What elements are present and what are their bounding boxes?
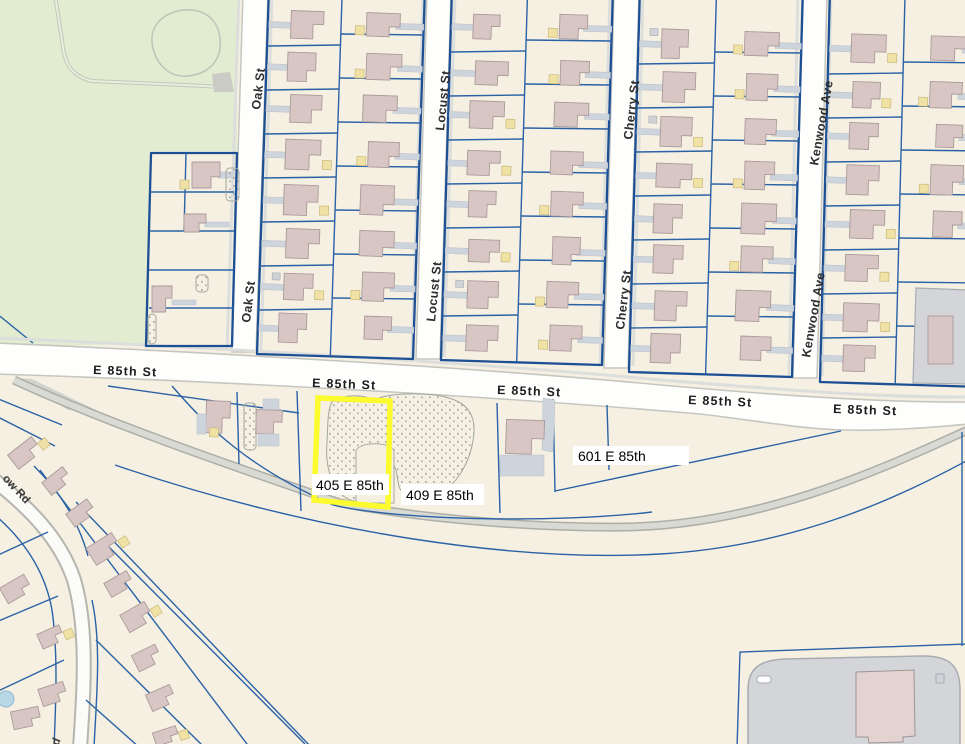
address-label-409-text: 409 E 85th — [406, 487, 474, 503]
shed — [650, 28, 658, 35]
garage — [882, 99, 891, 108]
driveway — [205, 222, 229, 227]
parking-lot — [748, 656, 960, 744]
address-label-601: 601 E 85th — [573, 446, 689, 465]
address-label-405-text: 405 E 85th — [316, 477, 384, 493]
garage — [730, 261, 739, 270]
garage — [540, 206, 549, 215]
address-label-601-text: 601 E 85th — [578, 448, 646, 464]
address-label-409: 409 E 85th — [401, 484, 484, 505]
garage — [355, 69, 364, 78]
parcel-line — [266, 89, 339, 90]
garage — [506, 119, 515, 128]
parcel-line — [267, 45, 340, 46]
parcel-line — [445, 227, 521, 228]
stipple-patch — [244, 403, 256, 450]
shed — [456, 280, 464, 287]
parcel-line — [444, 271, 520, 272]
parcel-line — [635, 151, 712, 152]
commercial-building — [856, 670, 915, 743]
stipple-patch — [226, 168, 239, 201]
parcel-line — [446, 183, 522, 184]
garage — [919, 184, 928, 193]
garage — [733, 45, 742, 54]
pool — [0, 691, 14, 707]
garage — [357, 157, 366, 166]
garage — [209, 428, 218, 437]
garage — [886, 229, 895, 238]
parcel-line — [524, 128, 609, 129]
address-label-405: 405 E 85th — [312, 474, 389, 495]
parcel-line — [633, 239, 710, 240]
garage — [314, 291, 323, 300]
parcel-line — [449, 95, 525, 96]
parcel-line — [442, 315, 518, 316]
stipple-patch — [148, 314, 156, 344]
parcel-line — [822, 293, 897, 294]
lot-island — [757, 676, 771, 683]
patio — [500, 455, 544, 476]
garage — [888, 53, 897, 62]
parcel-line — [826, 161, 901, 162]
shed — [272, 273, 280, 280]
garage — [918, 97, 927, 106]
garage — [693, 178, 702, 187]
parcel-line — [638, 63, 715, 64]
lot-shed — [936, 674, 944, 683]
parcel-line — [261, 221, 334, 222]
patio — [197, 414, 206, 434]
patio — [258, 434, 279, 446]
garage — [549, 75, 558, 84]
parcel-line — [450, 51, 526, 52]
parcel-line — [827, 117, 902, 118]
parcel-line — [258, 309, 331, 310]
top-right-lot — [913, 288, 965, 384]
parcel-line — [637, 107, 714, 108]
parcel-line — [634, 195, 711, 196]
parcel-map-screenshot: 405 E 85th 409 E 85th 601 E 85th Oak St … — [0, 0, 965, 744]
e85th-label-5: E 85th St — [833, 402, 898, 418]
garage — [735, 90, 744, 99]
parcel-line — [823, 249, 898, 250]
garage — [880, 322, 889, 331]
e85th-label-1: E 85th St — [93, 363, 158, 379]
garage — [501, 253, 510, 262]
garage — [502, 166, 511, 175]
parcel-line — [821, 337, 896, 338]
map-canvas[interactable]: 405 E 85th 409 E 85th 601 E 85th Oak St … — [0, 0, 965, 744]
parcel-line — [260, 265, 333, 266]
driveway — [172, 300, 196, 305]
e85th-label-3: E 85th St — [497, 383, 562, 399]
garage — [535, 297, 544, 306]
garage — [538, 340, 547, 349]
garage — [693, 137, 702, 146]
garage — [319, 206, 328, 215]
garage — [733, 179, 742, 188]
stipple-patch — [196, 275, 208, 292]
parcel-line — [632, 283, 709, 284]
garage — [880, 272, 889, 281]
parcel-line — [448, 139, 524, 140]
garage — [355, 26, 364, 35]
garage — [548, 28, 557, 37]
parcel-line — [630, 327, 707, 328]
parcel-line — [828, 73, 903, 74]
parcel-line — [264, 133, 337, 134]
garage — [351, 290, 360, 299]
e85th-label-2: E 85th St — [312, 376, 377, 392]
parcel-line — [824, 205, 899, 206]
parcel-line — [263, 177, 336, 178]
garage — [322, 160, 331, 169]
garage — [180, 180, 189, 189]
e85th-label-4: E 85th St — [688, 393, 753, 410]
parcel-line — [526, 40, 611, 41]
shed — [649, 116, 657, 123]
